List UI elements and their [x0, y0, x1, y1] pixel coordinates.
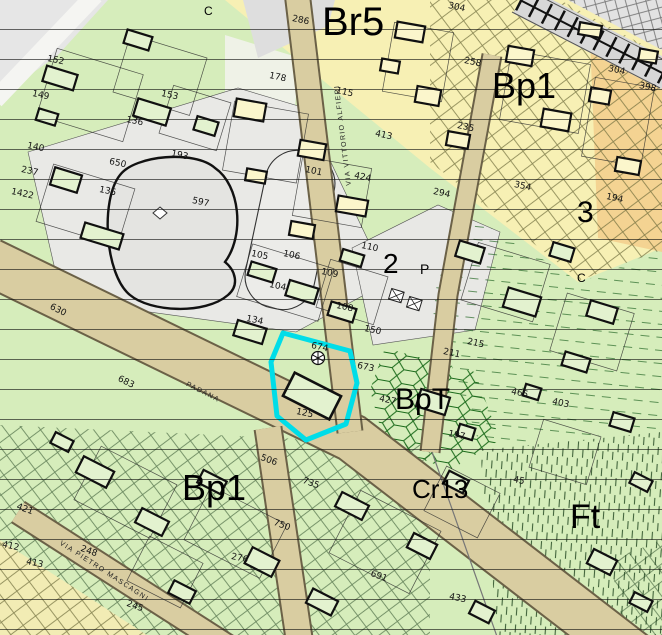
zoning-map: Br5Bp132PBpTCr13Bp1FtCCVIA VITTORIO ALFI… [0, 0, 662, 635]
parcel-marker-symbol [312, 352, 325, 365]
map-canvas [0, 0, 662, 635]
